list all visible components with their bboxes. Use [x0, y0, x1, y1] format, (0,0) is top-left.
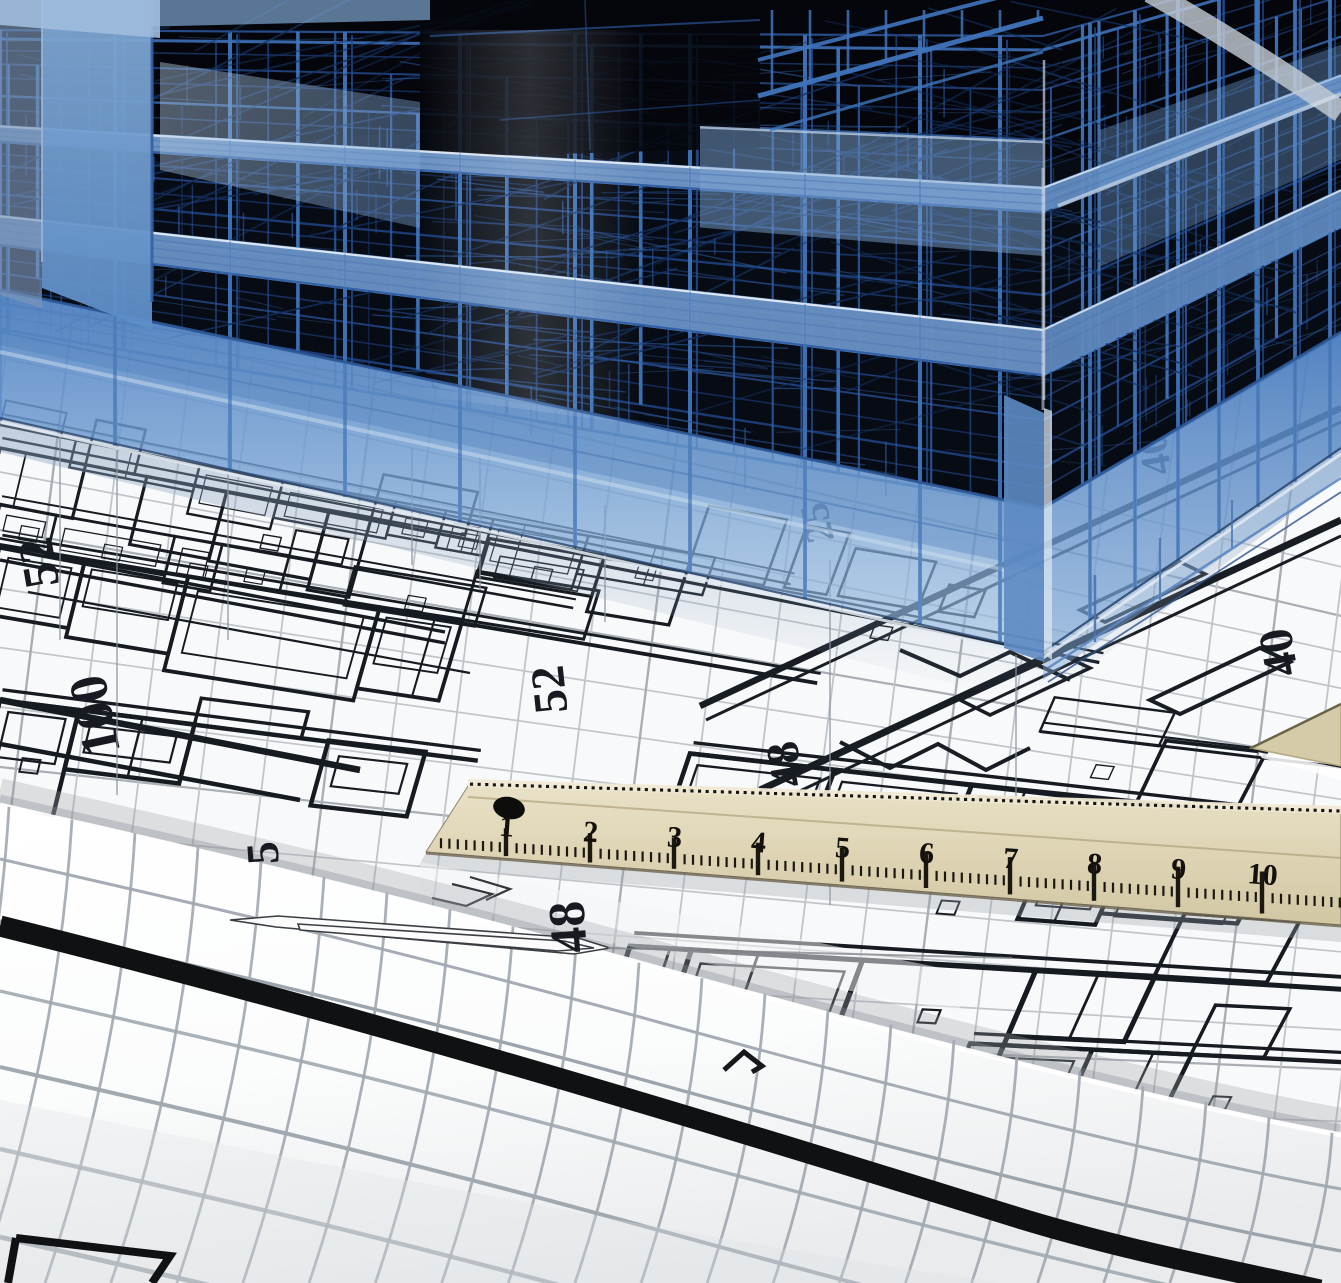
- svg-text:5: 5: [834, 831, 851, 865]
- svg-text:7: 7: [1002, 842, 1019, 876]
- svg-text:6: 6: [918, 836, 935, 870]
- svg-text:10: 10: [1247, 857, 1279, 892]
- svg-text:5: 5: [236, 840, 288, 867]
- svg-text:52: 52: [521, 663, 579, 716]
- svg-text:40: 40: [1248, 624, 1309, 680]
- svg-text:48: 48: [756, 738, 814, 792]
- svg-text:8: 8: [1086, 847, 1103, 881]
- svg-text:4: 4: [750, 826, 767, 860]
- svg-text:1: 1: [498, 810, 515, 844]
- svg-text:2: 2: [582, 815, 599, 849]
- svg-text:9: 9: [1170, 852, 1187, 886]
- svg-text:48: 48: [538, 899, 598, 955]
- svg-text:3: 3: [666, 820, 683, 854]
